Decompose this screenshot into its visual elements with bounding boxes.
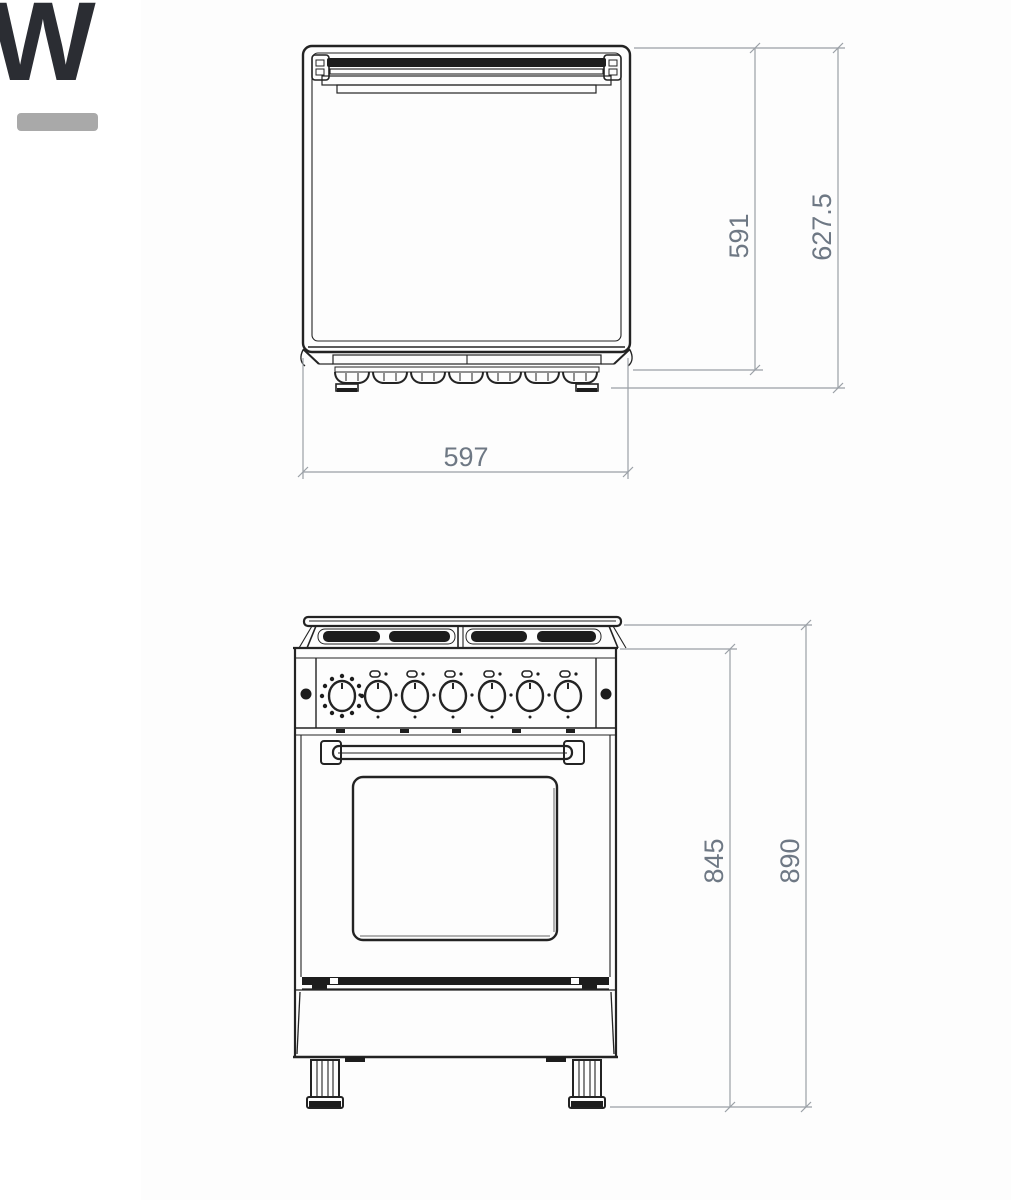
front-view-drawing bbox=[293, 617, 626, 1108]
panel-screw-left bbox=[301, 689, 312, 700]
top-view-drawing bbox=[301, 46, 632, 392]
dim-label-top-width: 597 bbox=[443, 442, 488, 472]
burner-icons bbox=[370, 671, 578, 677]
top-view-dimensions bbox=[298, 43, 845, 479]
top-view-knob-row bbox=[335, 372, 597, 383]
control-knobs bbox=[329, 681, 581, 711]
leg-left bbox=[307, 1060, 343, 1108]
leg-right bbox=[569, 1060, 605, 1108]
dim-label-top-depth-body: 591 bbox=[724, 213, 754, 258]
dim-label-front-height-body: 845 bbox=[699, 838, 729, 883]
technical-drawing: 597 591 627.5 bbox=[0, 0, 1011, 1200]
door-window bbox=[353, 777, 557, 940]
door-bottom-strip bbox=[302, 977, 609, 985]
panel-screw-right bbox=[601, 689, 612, 700]
dim-label-front-height-overall: 890 bbox=[775, 838, 805, 883]
page: W bbox=[0, 0, 1011, 1200]
dim-label-top-depth-overall: 627.5 bbox=[807, 193, 837, 261]
top-view-handle-bar bbox=[327, 58, 606, 67]
